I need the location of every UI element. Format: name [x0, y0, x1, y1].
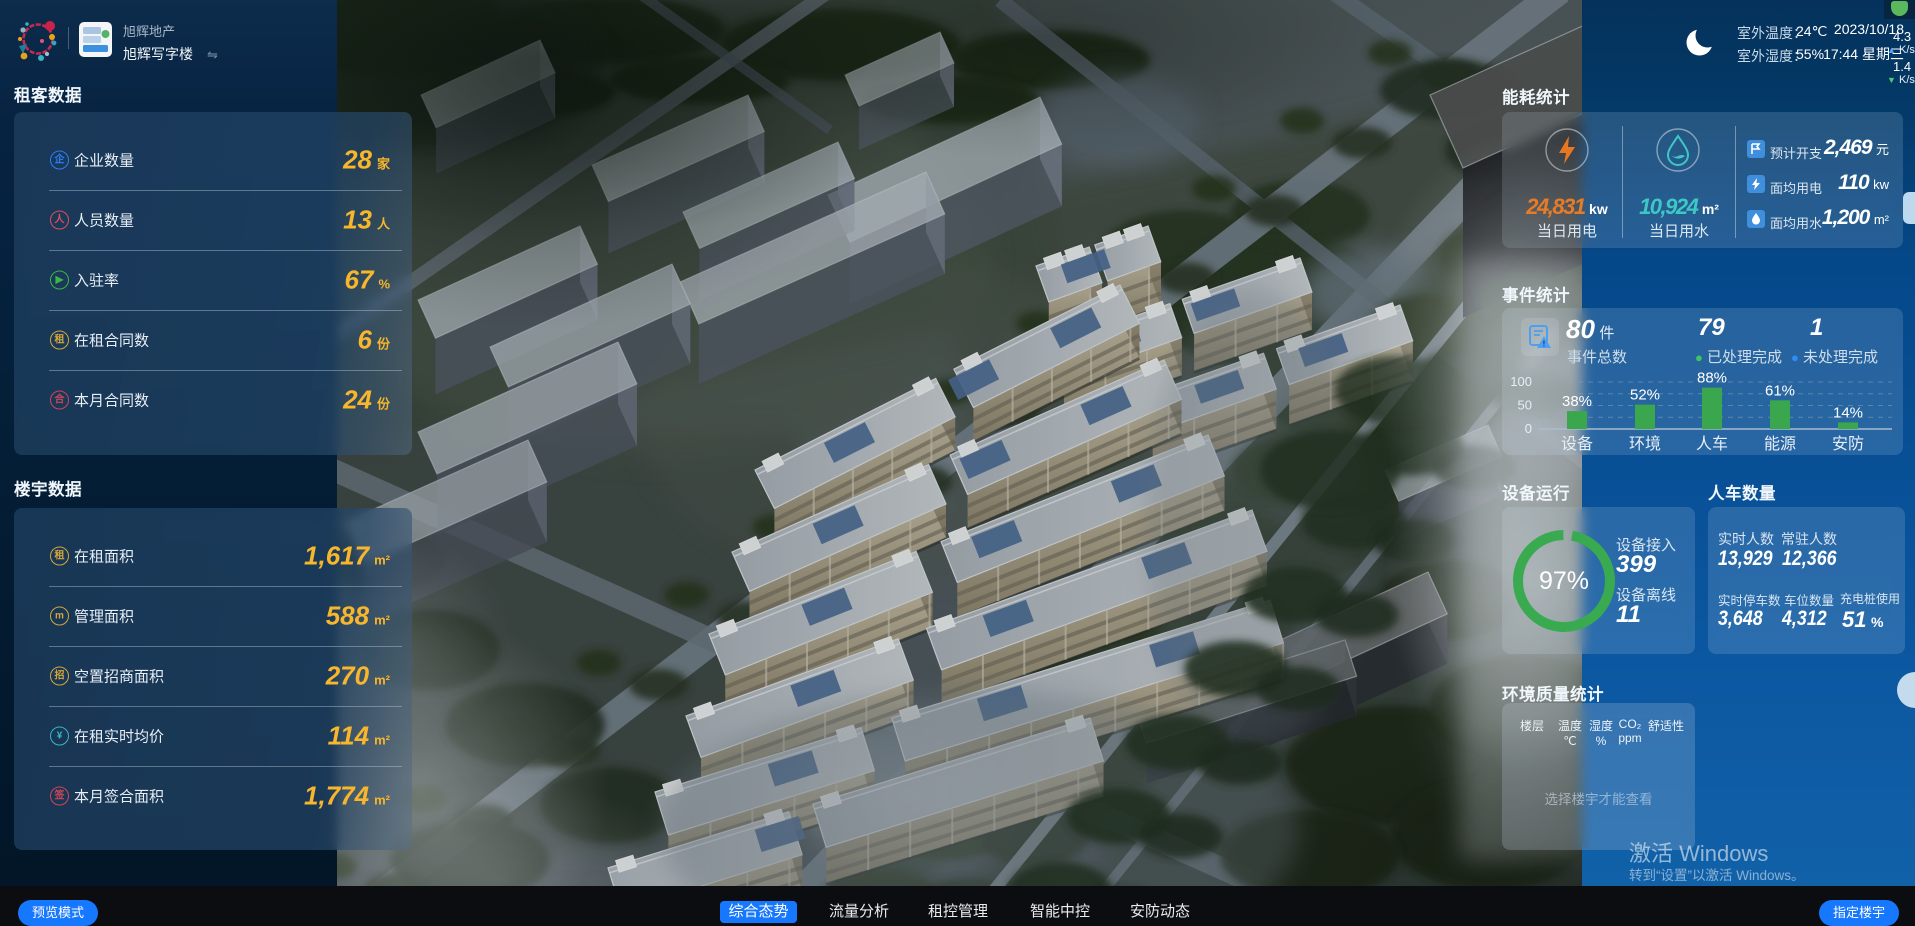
- svg-text:97%: 97%: [1539, 567, 1589, 595]
- svg-text:环境: 环境: [1629, 434, 1661, 453]
- svg-text:38%: 38%: [1562, 393, 1592, 410]
- svg-text:52%: 52%: [1630, 387, 1660, 404]
- svg-text:61%: 61%: [1765, 382, 1795, 399]
- svg-text:14%: 14%: [1833, 404, 1863, 421]
- svg-text:设备: 设备: [1561, 435, 1593, 453]
- svg-text:50: 50: [1518, 398, 1532, 413]
- svg-text:人车: 人车: [1696, 435, 1728, 453]
- svg-text:安防: 安防: [1832, 435, 1864, 453]
- svg-text:能源: 能源: [1764, 435, 1796, 453]
- svg-text:88%: 88%: [1697, 370, 1727, 387]
- svg-text:100: 100: [1510, 374, 1532, 389]
- svg-text:0: 0: [1525, 421, 1532, 436]
